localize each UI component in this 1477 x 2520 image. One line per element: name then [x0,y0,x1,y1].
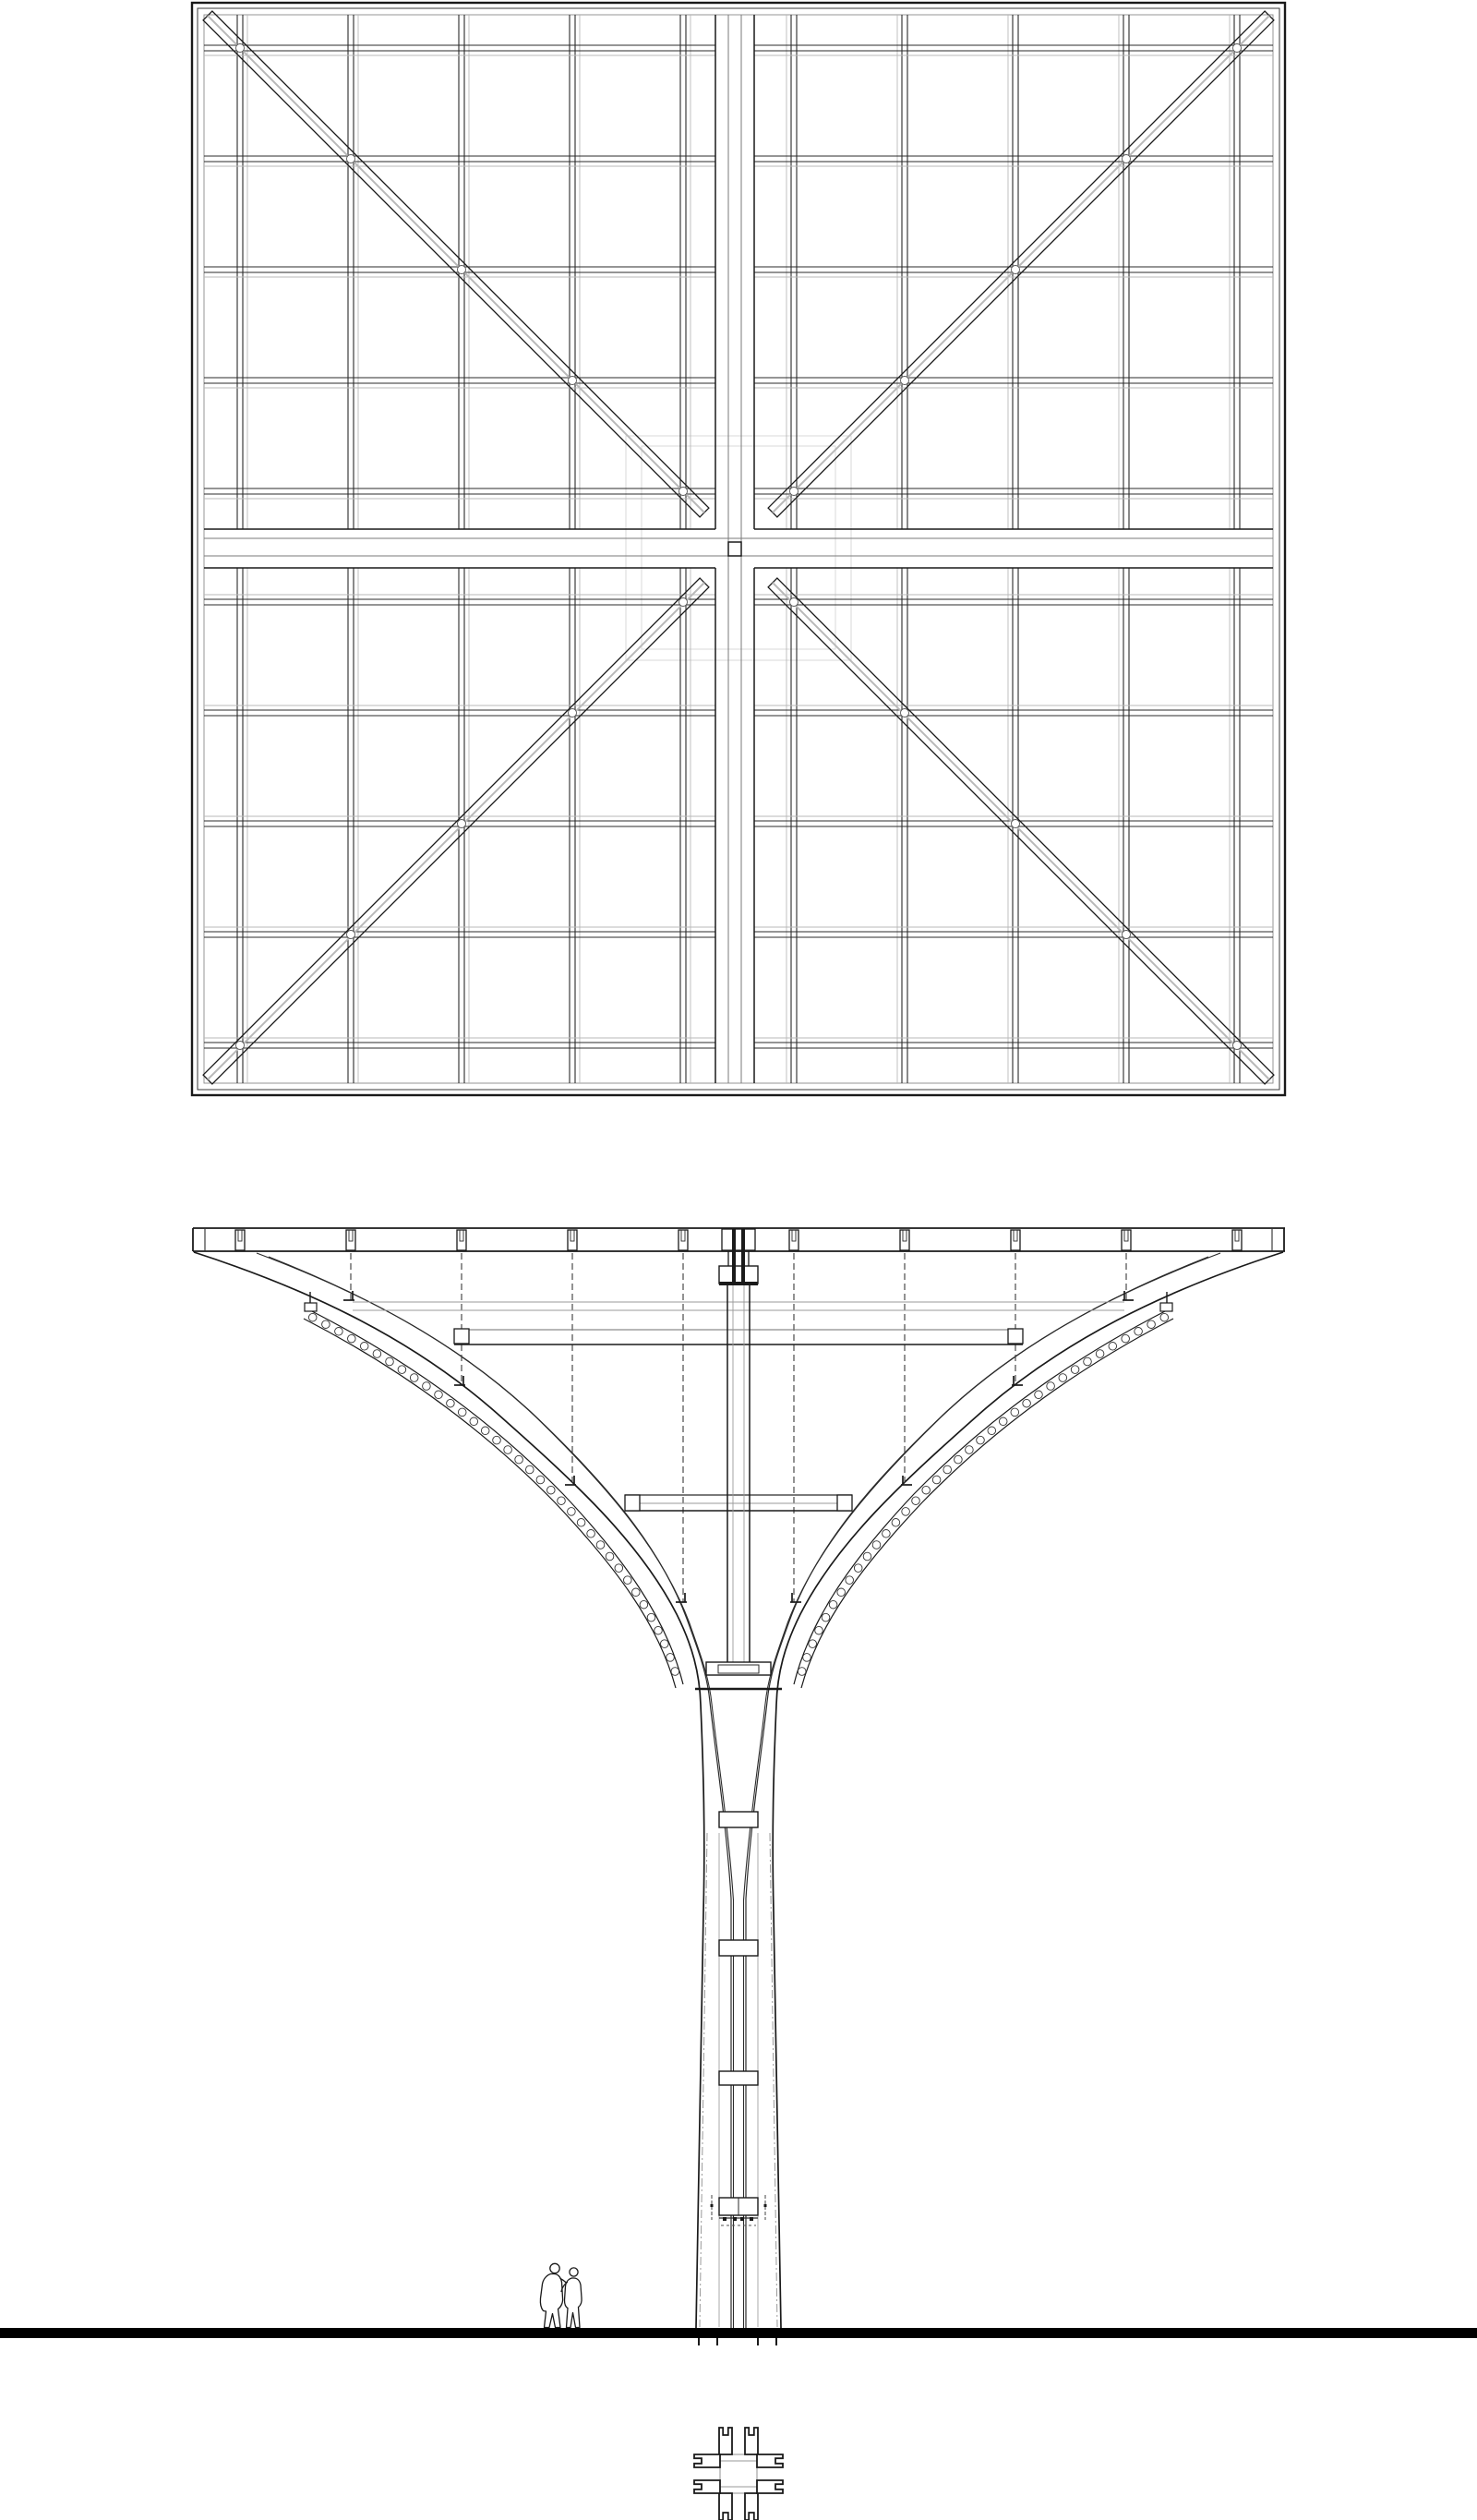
detail-channel-profile [719,2428,732,2454]
ring-segment-circle [654,1626,663,1634]
ring-band-center-path [307,1315,680,1687]
ring-segment-circle [515,1455,523,1464]
ring-band-start-bracket [305,1303,317,1311]
elevation-generated-linework [205,1229,767,2225]
ring-segment-circle [470,1417,478,1426]
base-plate-bolt-mark [750,2217,753,2221]
ring-segment-circle [632,1588,641,1597]
ring-segment-circle [493,1436,501,1444]
base-plate-bolt-mark [733,2217,737,2221]
purlin-stub [235,1230,245,1250]
ring-segment-circle [596,1541,605,1549]
plan-diagonal-node-circle [1012,266,1020,274]
detail-channel-profile [757,2454,783,2467]
ring-segment-circle [322,1320,330,1329]
ring-segment-circle [373,1350,381,1358]
drawing-sheet [0,0,1477,2520]
purlin-stub [678,1230,688,1250]
ring-segment-circle [615,1564,623,1573]
shaft-collar [719,1940,758,1956]
plan-diagonal-node-circle [1123,155,1131,163]
flare-inner-shell-curve-1 [257,1253,731,2328]
plan-diagonal-node-circle [347,931,355,939]
ring-segment-circle [666,1654,675,1662]
lower-cross-beam-end-block [625,1495,640,1511]
ring-segment-circle [568,1508,576,1516]
mast-tie-bar-left [732,1229,736,1282]
plan-diagonal-node-circle [569,709,577,717]
ring-segment-circle [671,1668,679,1676]
foundation-bolts [699,2338,776,2345]
canopy-column-elevation [193,1228,1285,2328]
person-1-body [540,2274,562,2328]
ring-segment-circle [386,1357,394,1366]
ring-segment-circle [624,1576,632,1585]
detail-channel-profile [694,2454,720,2467]
plan-diagonal-centerline [773,583,1269,1079]
plan-diagonal-node-circle [236,44,245,53]
ring-segment-circle [481,1427,489,1435]
base-plate-side-bolt [764,2204,767,2207]
shaft-collar [719,1812,758,1827]
plan-diagonal-node-circle [236,1042,245,1050]
ring-segment-circle [335,1328,343,1336]
flare-outer-shell-curve [194,1252,704,2328]
base-plate-bolt-mark [723,2217,726,2221]
plan-diagonal-node-circle [1012,820,1020,828]
flare-right-half [738,1228,1284,2328]
roof-plan-view [192,3,1285,1095]
plan-diagonal-node-circle [569,377,577,385]
ring-segment-circle [308,1313,317,1321]
ring-segment-circle [435,1391,443,1399]
plan-diagonal-node-circle [1233,1042,1242,1050]
column-cruciform-section-detail [694,2428,783,2520]
mast-cap-foot [719,1282,758,1285]
ring-segment-circle [348,1334,356,1343]
detail-channel-profile [745,2493,758,2520]
detail-core-square [720,2454,757,2493]
ring-segment-circle [587,1530,595,1538]
flare-left-half [193,1228,738,2328]
ring-segment-circle [504,1446,512,1454]
ring-segment-circle [640,1600,648,1609]
ring-segment-circle [423,1382,431,1391]
base-plate-side-bolt [711,2204,714,2207]
purlin-stub [346,1230,355,1250]
person-2-head [570,2268,578,2276]
upper-cross-beam-end-block [454,1329,469,1344]
detail-channel-profile [694,2480,720,2493]
plan-diagonal-node-circle [679,488,688,496]
scale-figures [540,2263,582,2327]
ring-segment-circle [647,1613,655,1622]
ring-segment-circle [577,1519,585,1527]
plan-diagonal-centerline [208,583,704,1079]
mast-cap-block [719,1266,758,1284]
detail-channel-profile [745,2428,758,2454]
plan-diagonal-node-circle [790,598,799,607]
purlin-stub [568,1230,577,1250]
plan-diagonal-node-circle [1233,44,1242,53]
ring-segment-circle [547,1486,556,1494]
ring-band-inner-curve [304,1319,676,1688]
plan-diagonal-centerline [208,16,704,512]
ring-segment-circle [360,1343,368,1351]
ring-segment-circle [558,1497,566,1505]
technical-drawing [0,0,1477,2520]
ring-segment-circle [410,1374,418,1382]
central-mast [695,1229,782,1689]
mast-tie-bar-right [741,1229,745,1282]
detail-channel-profile [757,2480,783,2493]
mast-beam-connector [722,1229,755,1250]
ring-segment-circle [526,1465,534,1474]
plan-diagonal-node-circle [901,377,909,385]
ring-segment-circle [606,1552,614,1561]
purlin-stub [457,1230,466,1250]
plan-diagonal-node-circle [458,266,466,274]
ground [0,2328,1477,2345]
ground-line [0,2328,1477,2338]
plan-diagonal-node-circle [901,709,909,717]
base-plate-bolt-mark [740,2217,744,2221]
plan-center-column-square [728,542,741,556]
ring-segment-circle [661,1640,669,1648]
plan-diagonal-node-circle [458,820,466,828]
plan-diagonal-node-circle [790,488,799,496]
plan-diagonal-node-circle [679,598,688,607]
plan-diagonal-node-circle [347,155,355,163]
person-1-head [550,2263,559,2273]
detail-channel-profile [719,2493,732,2520]
person-2-body [565,2278,582,2328]
ring-segment-circle [536,1476,545,1484]
flare-generated-linework [235,1230,738,2327]
shaft-collar [719,2071,758,2085]
plan-diagonal-node-circle [1123,931,1131,939]
ring-segment-circle [458,1408,466,1417]
plan-diagonal-centerline [773,16,1269,512]
ring-segment-circle [447,1399,455,1407]
ring-segment-circle [398,1366,406,1374]
